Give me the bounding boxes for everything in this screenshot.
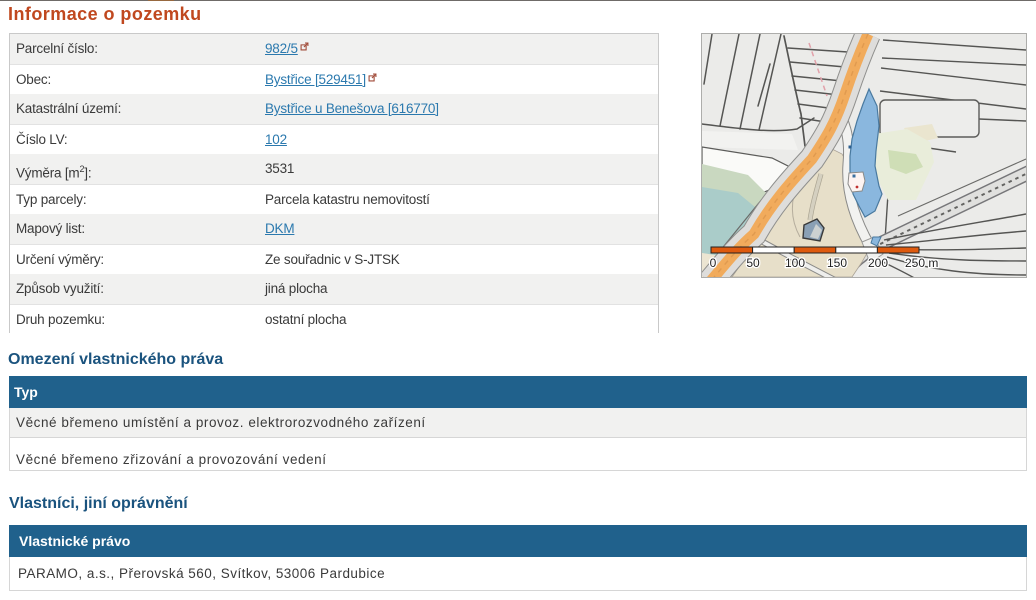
svg-text:0: 0 bbox=[710, 256, 717, 270]
svg-text:250 m: 250 m bbox=[905, 256, 938, 270]
svg-text:200: 200 bbox=[868, 256, 888, 270]
svg-text:100: 100 bbox=[785, 256, 805, 270]
svg-text:150: 150 bbox=[827, 256, 847, 270]
svg-text:50: 50 bbox=[746, 256, 760, 270]
